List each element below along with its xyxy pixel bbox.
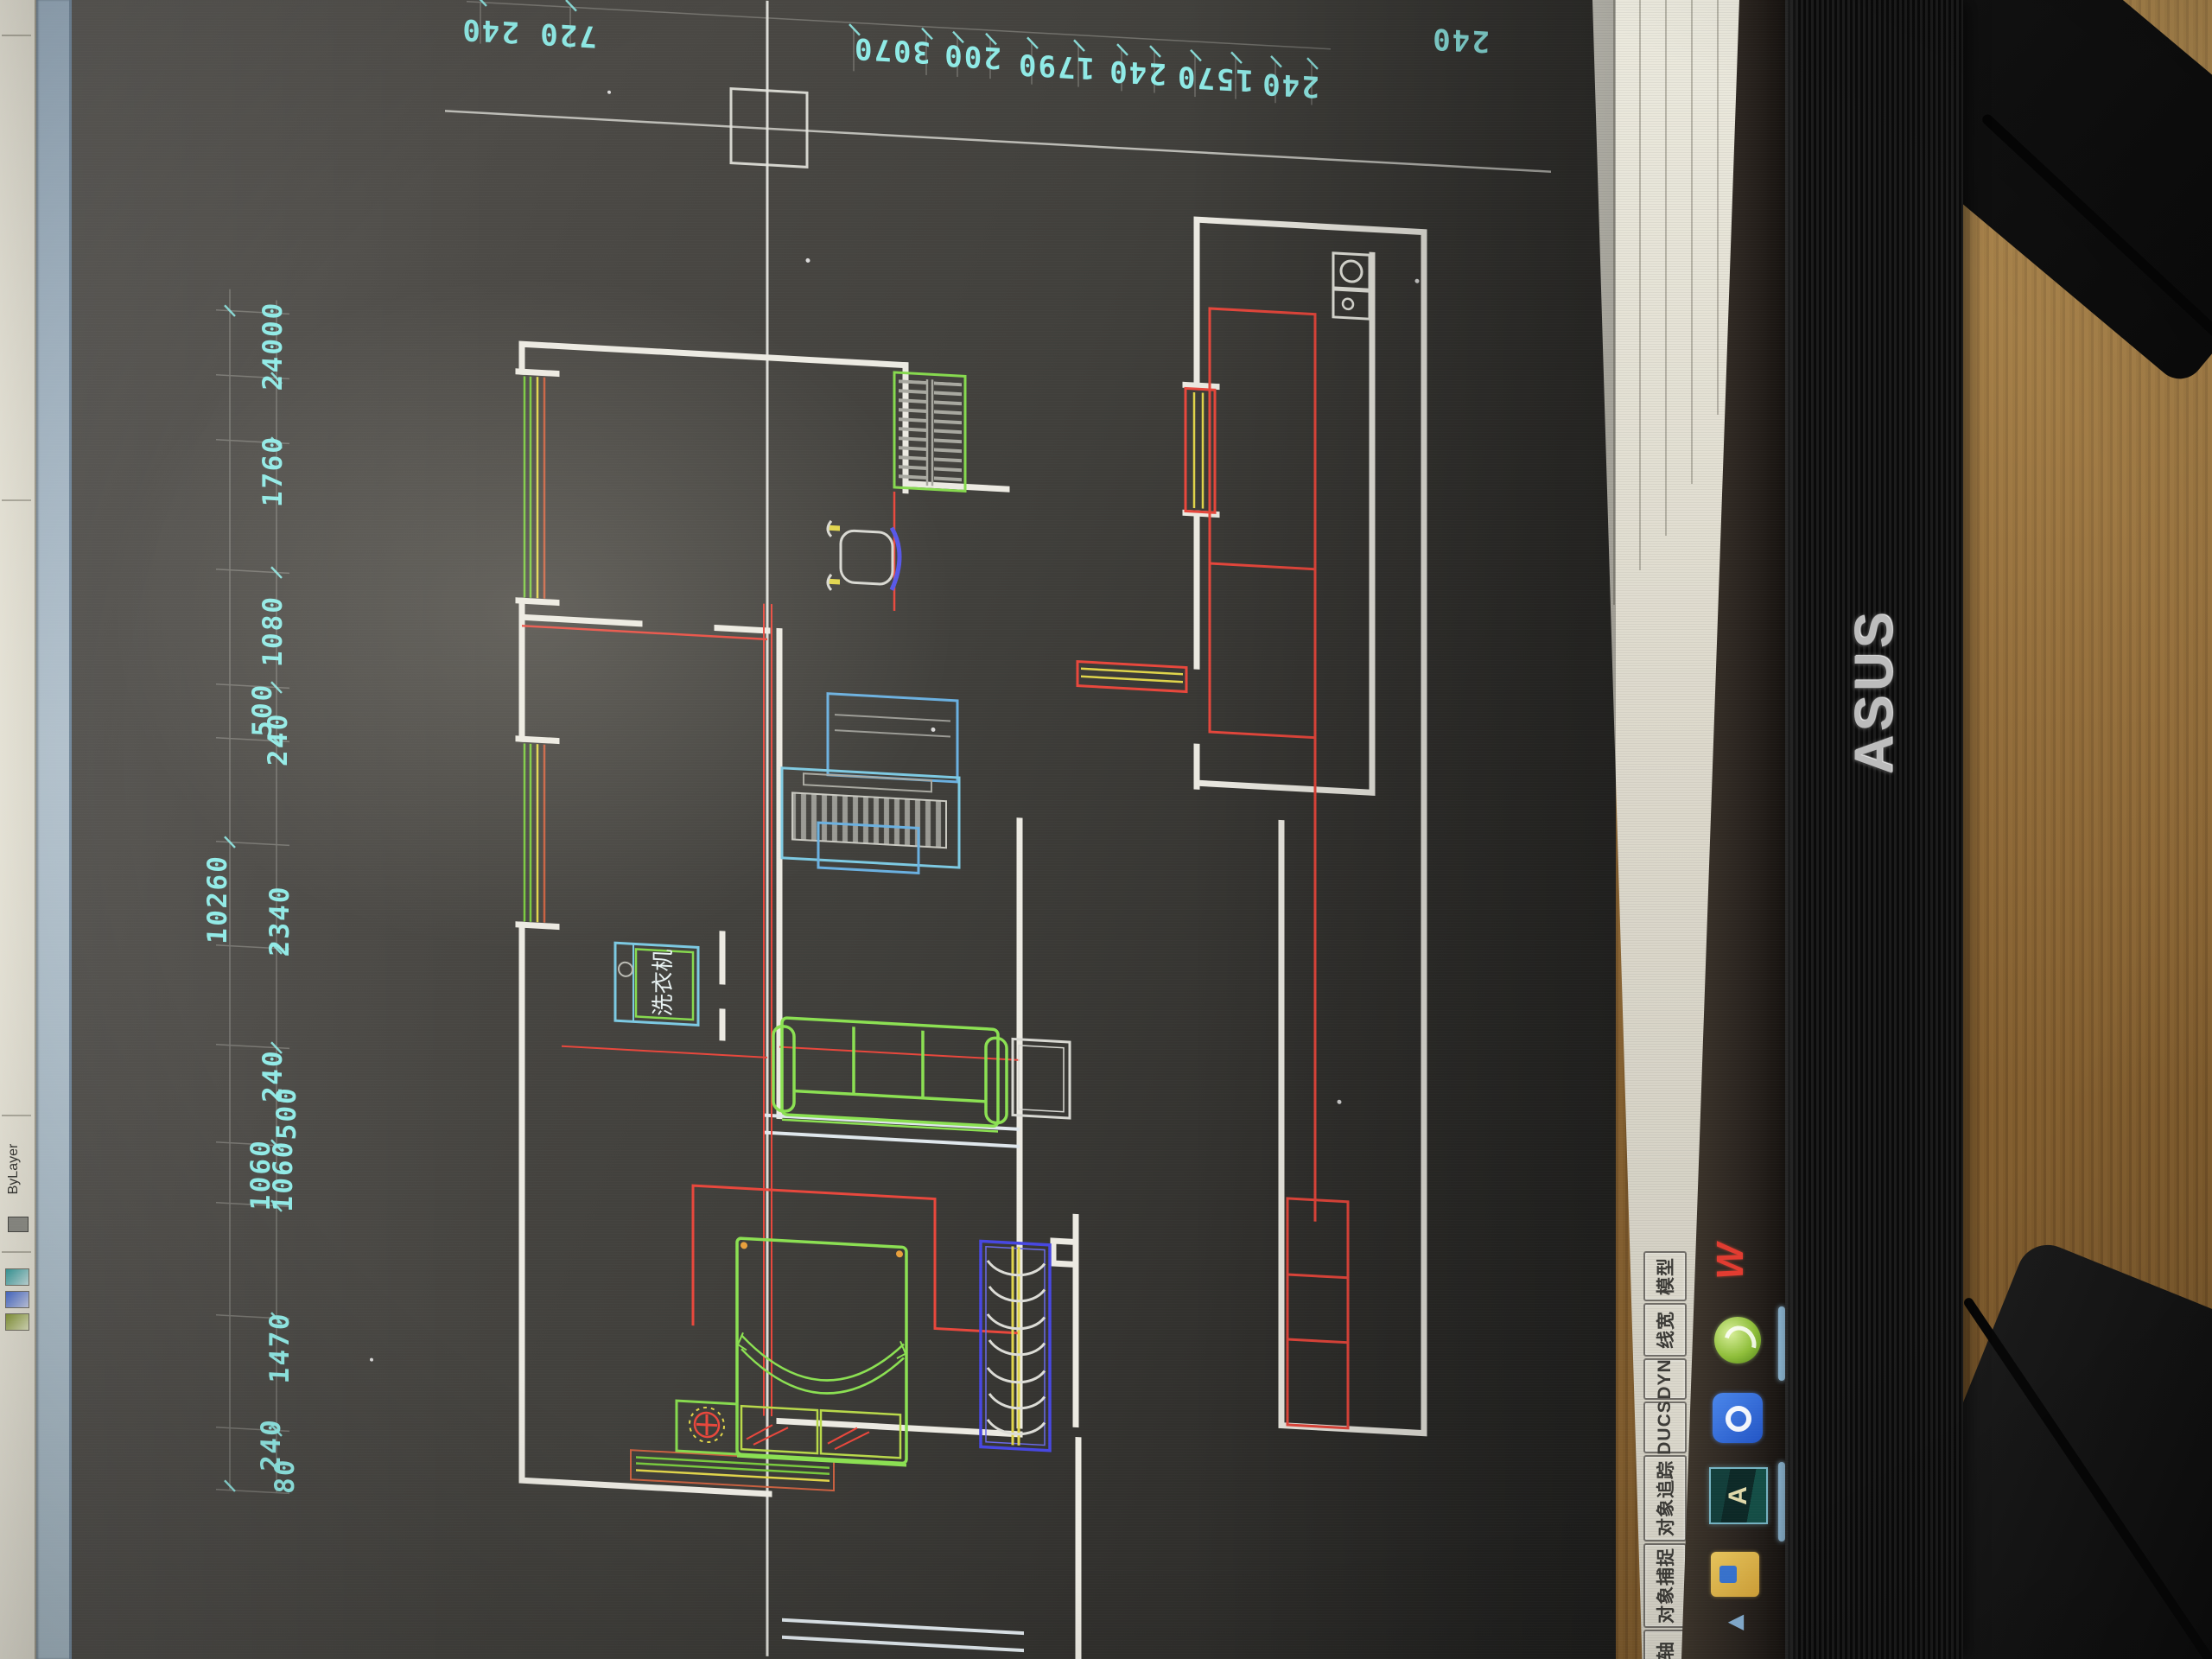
cad-model-space-canvas[interactable] [69, 0, 1616, 1659]
toolbar-separator [2, 35, 31, 36]
command-text-line [1691, 0, 1693, 484]
toggle-object-track[interactable]: 对象追踪 [1643, 1455, 1687, 1541]
layer-tool-icon[interactable] [5, 1313, 29, 1331]
blue-app-icon[interactable] [1713, 1393, 1763, 1443]
wps-office-icon[interactable]: W [1704, 1239, 1758, 1284]
command-text-line [1639, 0, 1641, 570]
layer-tool-icon[interactable] [5, 1268, 29, 1286]
toolbar-separator [2, 1115, 31, 1116]
tray-expand-arrow-icon[interactable]: ◀ [1723, 1609, 1749, 1635]
asus-logo: ASUS [1785, 553, 1963, 829]
toggle-lineweight[interactable]: 线宽 [1643, 1303, 1687, 1357]
toggle-ducs[interactable]: DUCS [1643, 1402, 1687, 1453]
toggle-object-snap[interactable]: 对象捕捉 [1643, 1543, 1687, 1628]
toggle-polar[interactable]: 极轴 [1643, 1630, 1687, 1659]
taskbar-active-indicator [1778, 1462, 1785, 1541]
command-text-line [1717, 0, 1719, 415]
folder-icon[interactable] [1711, 1552, 1759, 1597]
toggle-model[interactable]: 模型 [1643, 1251, 1687, 1301]
layer-tool-icon[interactable] [5, 1291, 29, 1308]
green-browser-icon[interactable] [1714, 1317, 1761, 1363]
autocad-taskbar-thumbnail[interactable]: A [1709, 1467, 1768, 1524]
command-text-line [1613, 0, 1615, 605]
color-swatch[interactable] [8, 1217, 29, 1232]
monitor-bezel: ASUS [1785, 0, 1963, 1659]
bylayer-dropdown[interactable]: ByLayer [4, 1117, 23, 1221]
taskbar-active-indicator [1778, 1306, 1785, 1381]
toggle-dyn[interactable]: DYN [1643, 1358, 1687, 1400]
photo-of-monitor-scene: 洗衣机 [0, 0, 2212, 1659]
toolbar-dock-strip [36, 0, 72, 1659]
toolbar-separator [2, 499, 31, 501]
command-text-line [1665, 0, 1667, 536]
toolbar-separator [2, 1251, 31, 1253]
cad-properties-toolbar: ByLayer [0, 0, 36, 1659]
